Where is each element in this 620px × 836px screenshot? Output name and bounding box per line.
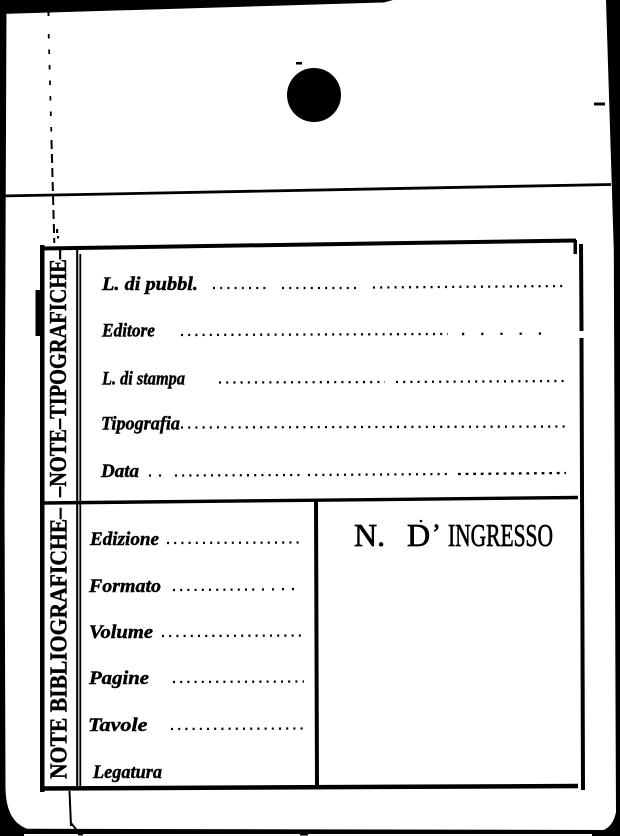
svg-text:Editore: Editore [101,321,155,342]
svg-text:NOTE BIBLIOGRAFICHE–: NOTE BIBLIOGRAFICHE– [47,507,73,779]
svg-text:’: ’ [432,519,441,548]
svg-text:Edizione: Edizione [89,529,160,550]
svg-text:Pagine: Pagine [88,668,150,689]
svg-text:Formato: Formato [88,576,161,597]
svg-text:Tipografia: Tipografia [101,414,180,435]
svg-text:L. di stampa: L. di stampa [101,369,185,390]
svg-text:Volume: Volume [89,622,154,643]
svg-text:Data: Data [100,461,140,482]
svg-text:D: D [407,517,430,553]
svg-text:N.: N. [354,517,385,553]
svg-text:Legatura: Legatura [92,762,162,783]
svg-text:–NOTE–TIPOGRAFICHE–: –NOTE–TIPOGRAFICHE– [46,248,72,498]
svg-text:INGRESSO: INGRESSO [448,517,553,553]
svg-text:L. di pubbl.: L. di pubbl. [101,274,198,295]
svg-text:Tavole: Tavole [88,715,148,736]
